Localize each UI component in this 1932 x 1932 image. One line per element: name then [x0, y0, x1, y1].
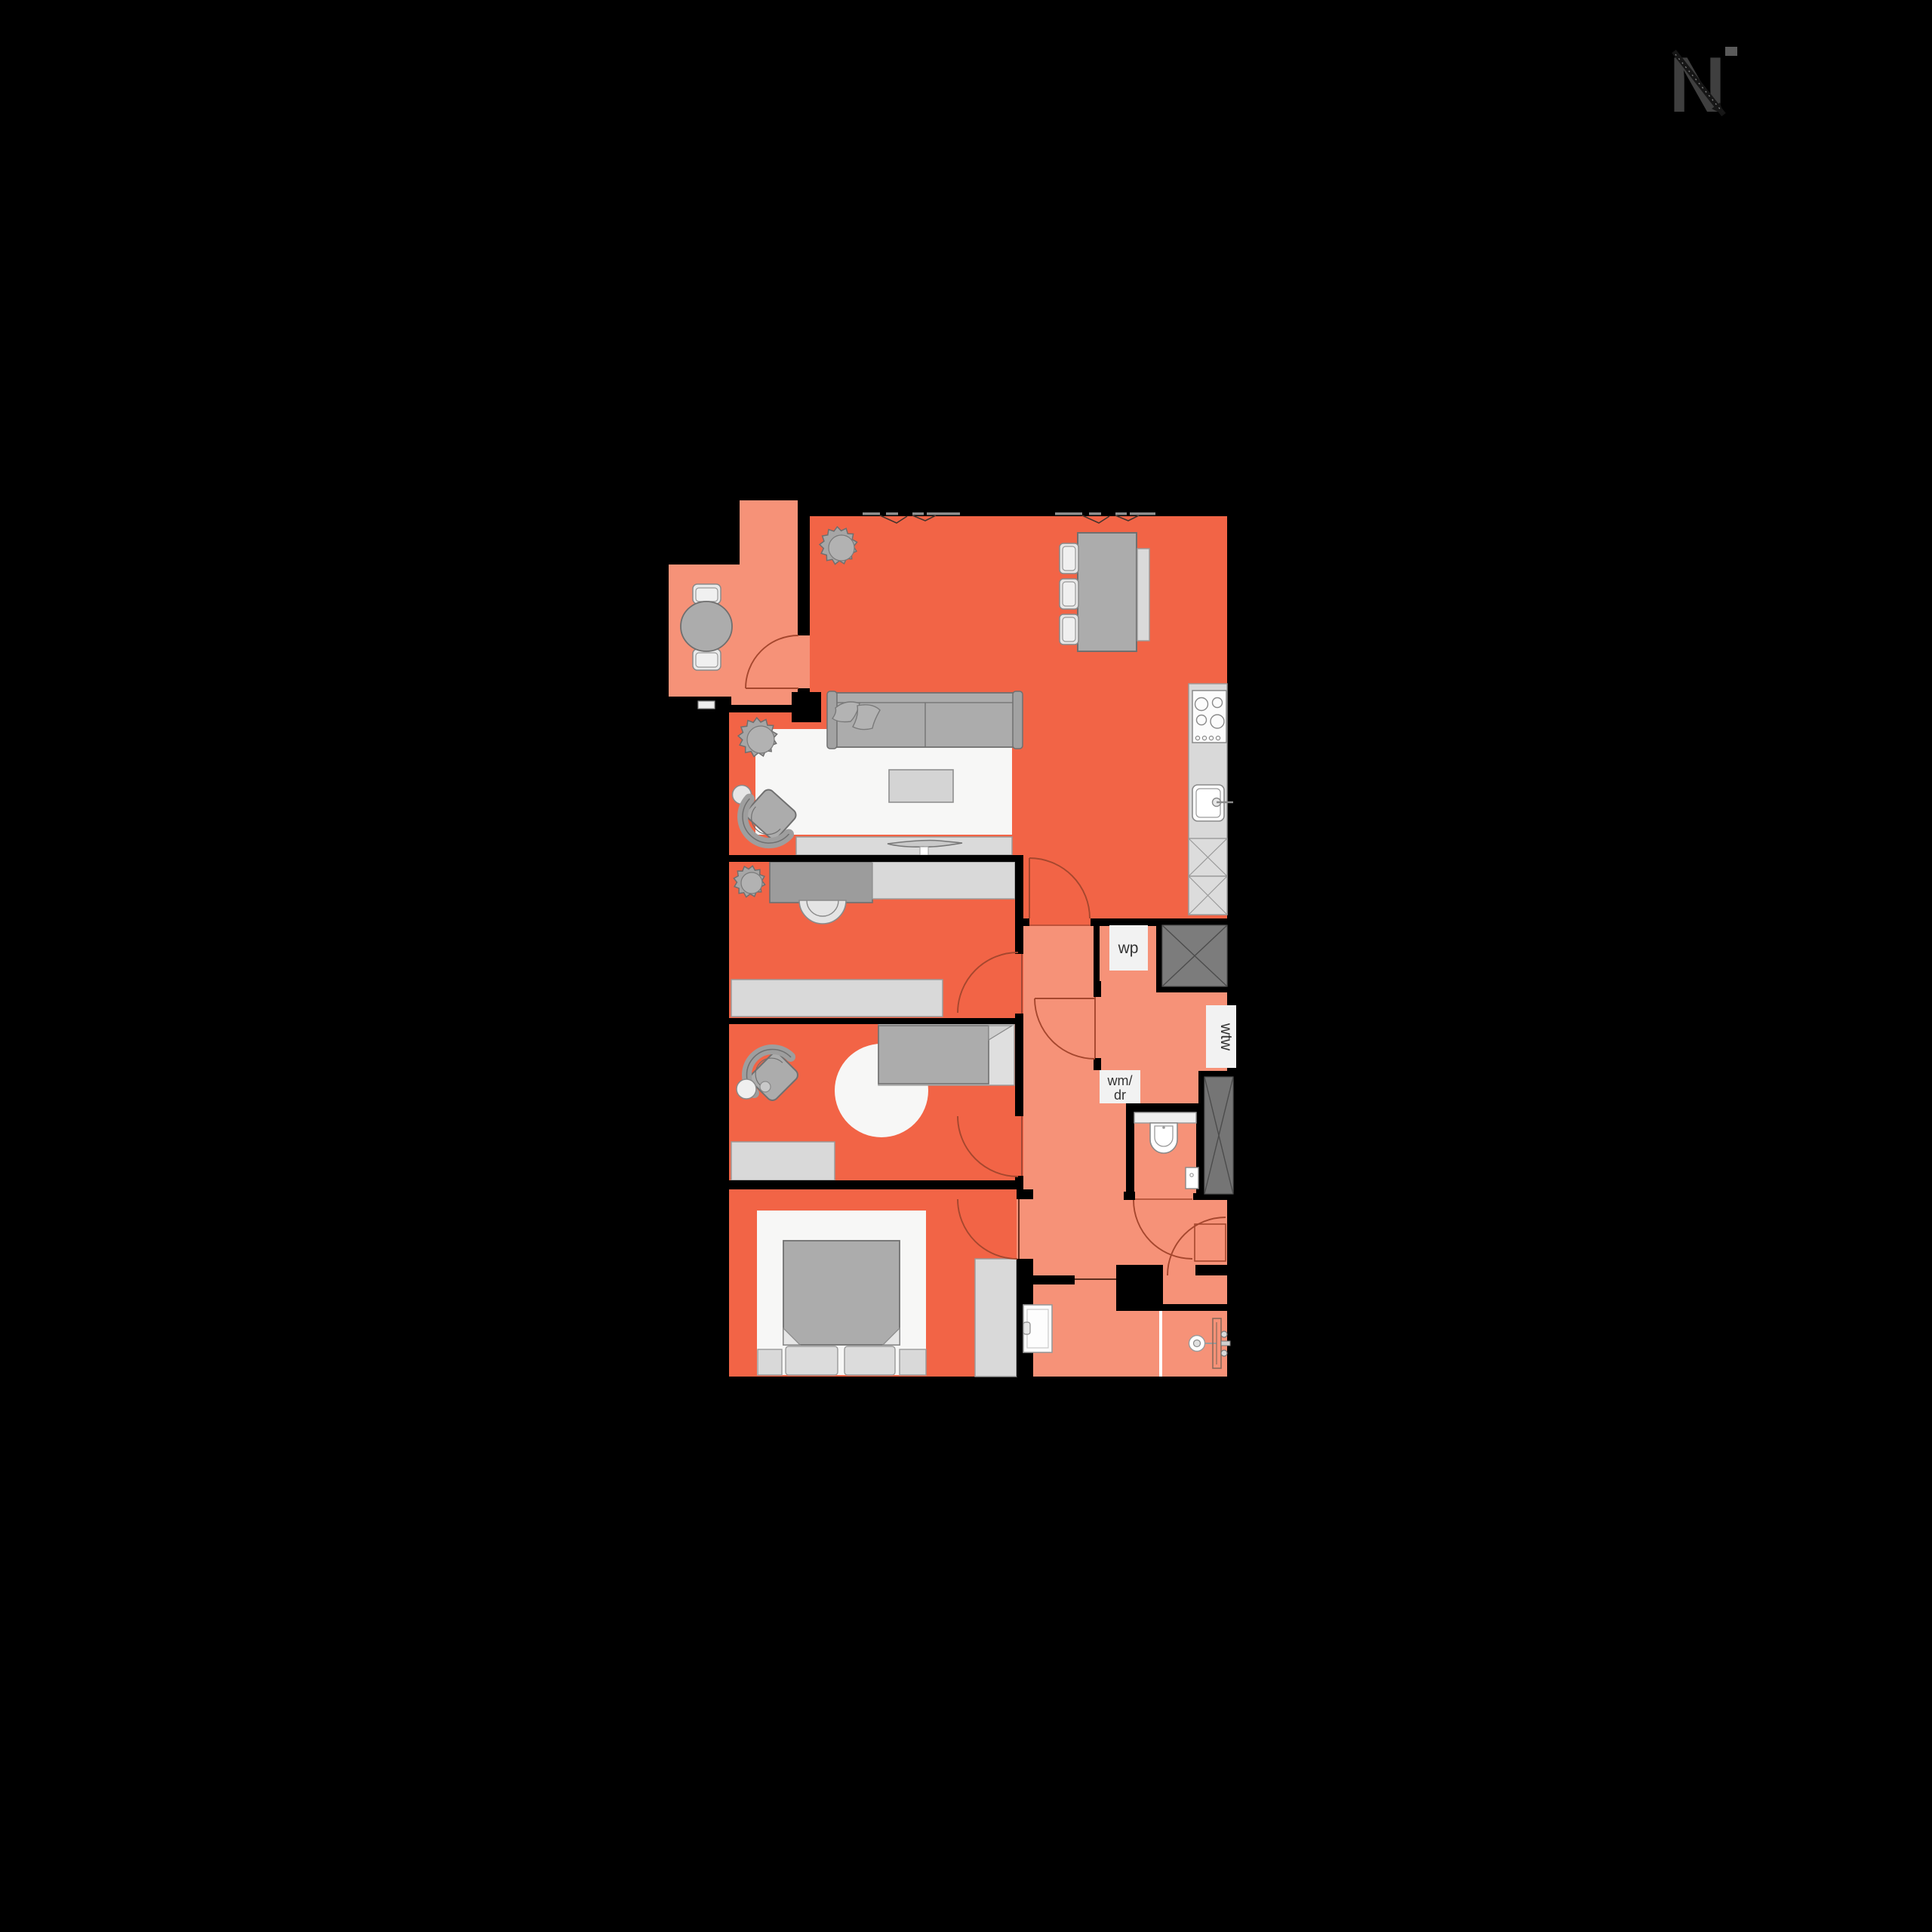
svg-text:wm/: wm/ [1107, 1073, 1133, 1088]
svg-text:wtw: wtw [1217, 1023, 1235, 1051]
svg-text:dr: dr [1114, 1088, 1126, 1103]
svg-text:wp: wp [1118, 940, 1139, 957]
